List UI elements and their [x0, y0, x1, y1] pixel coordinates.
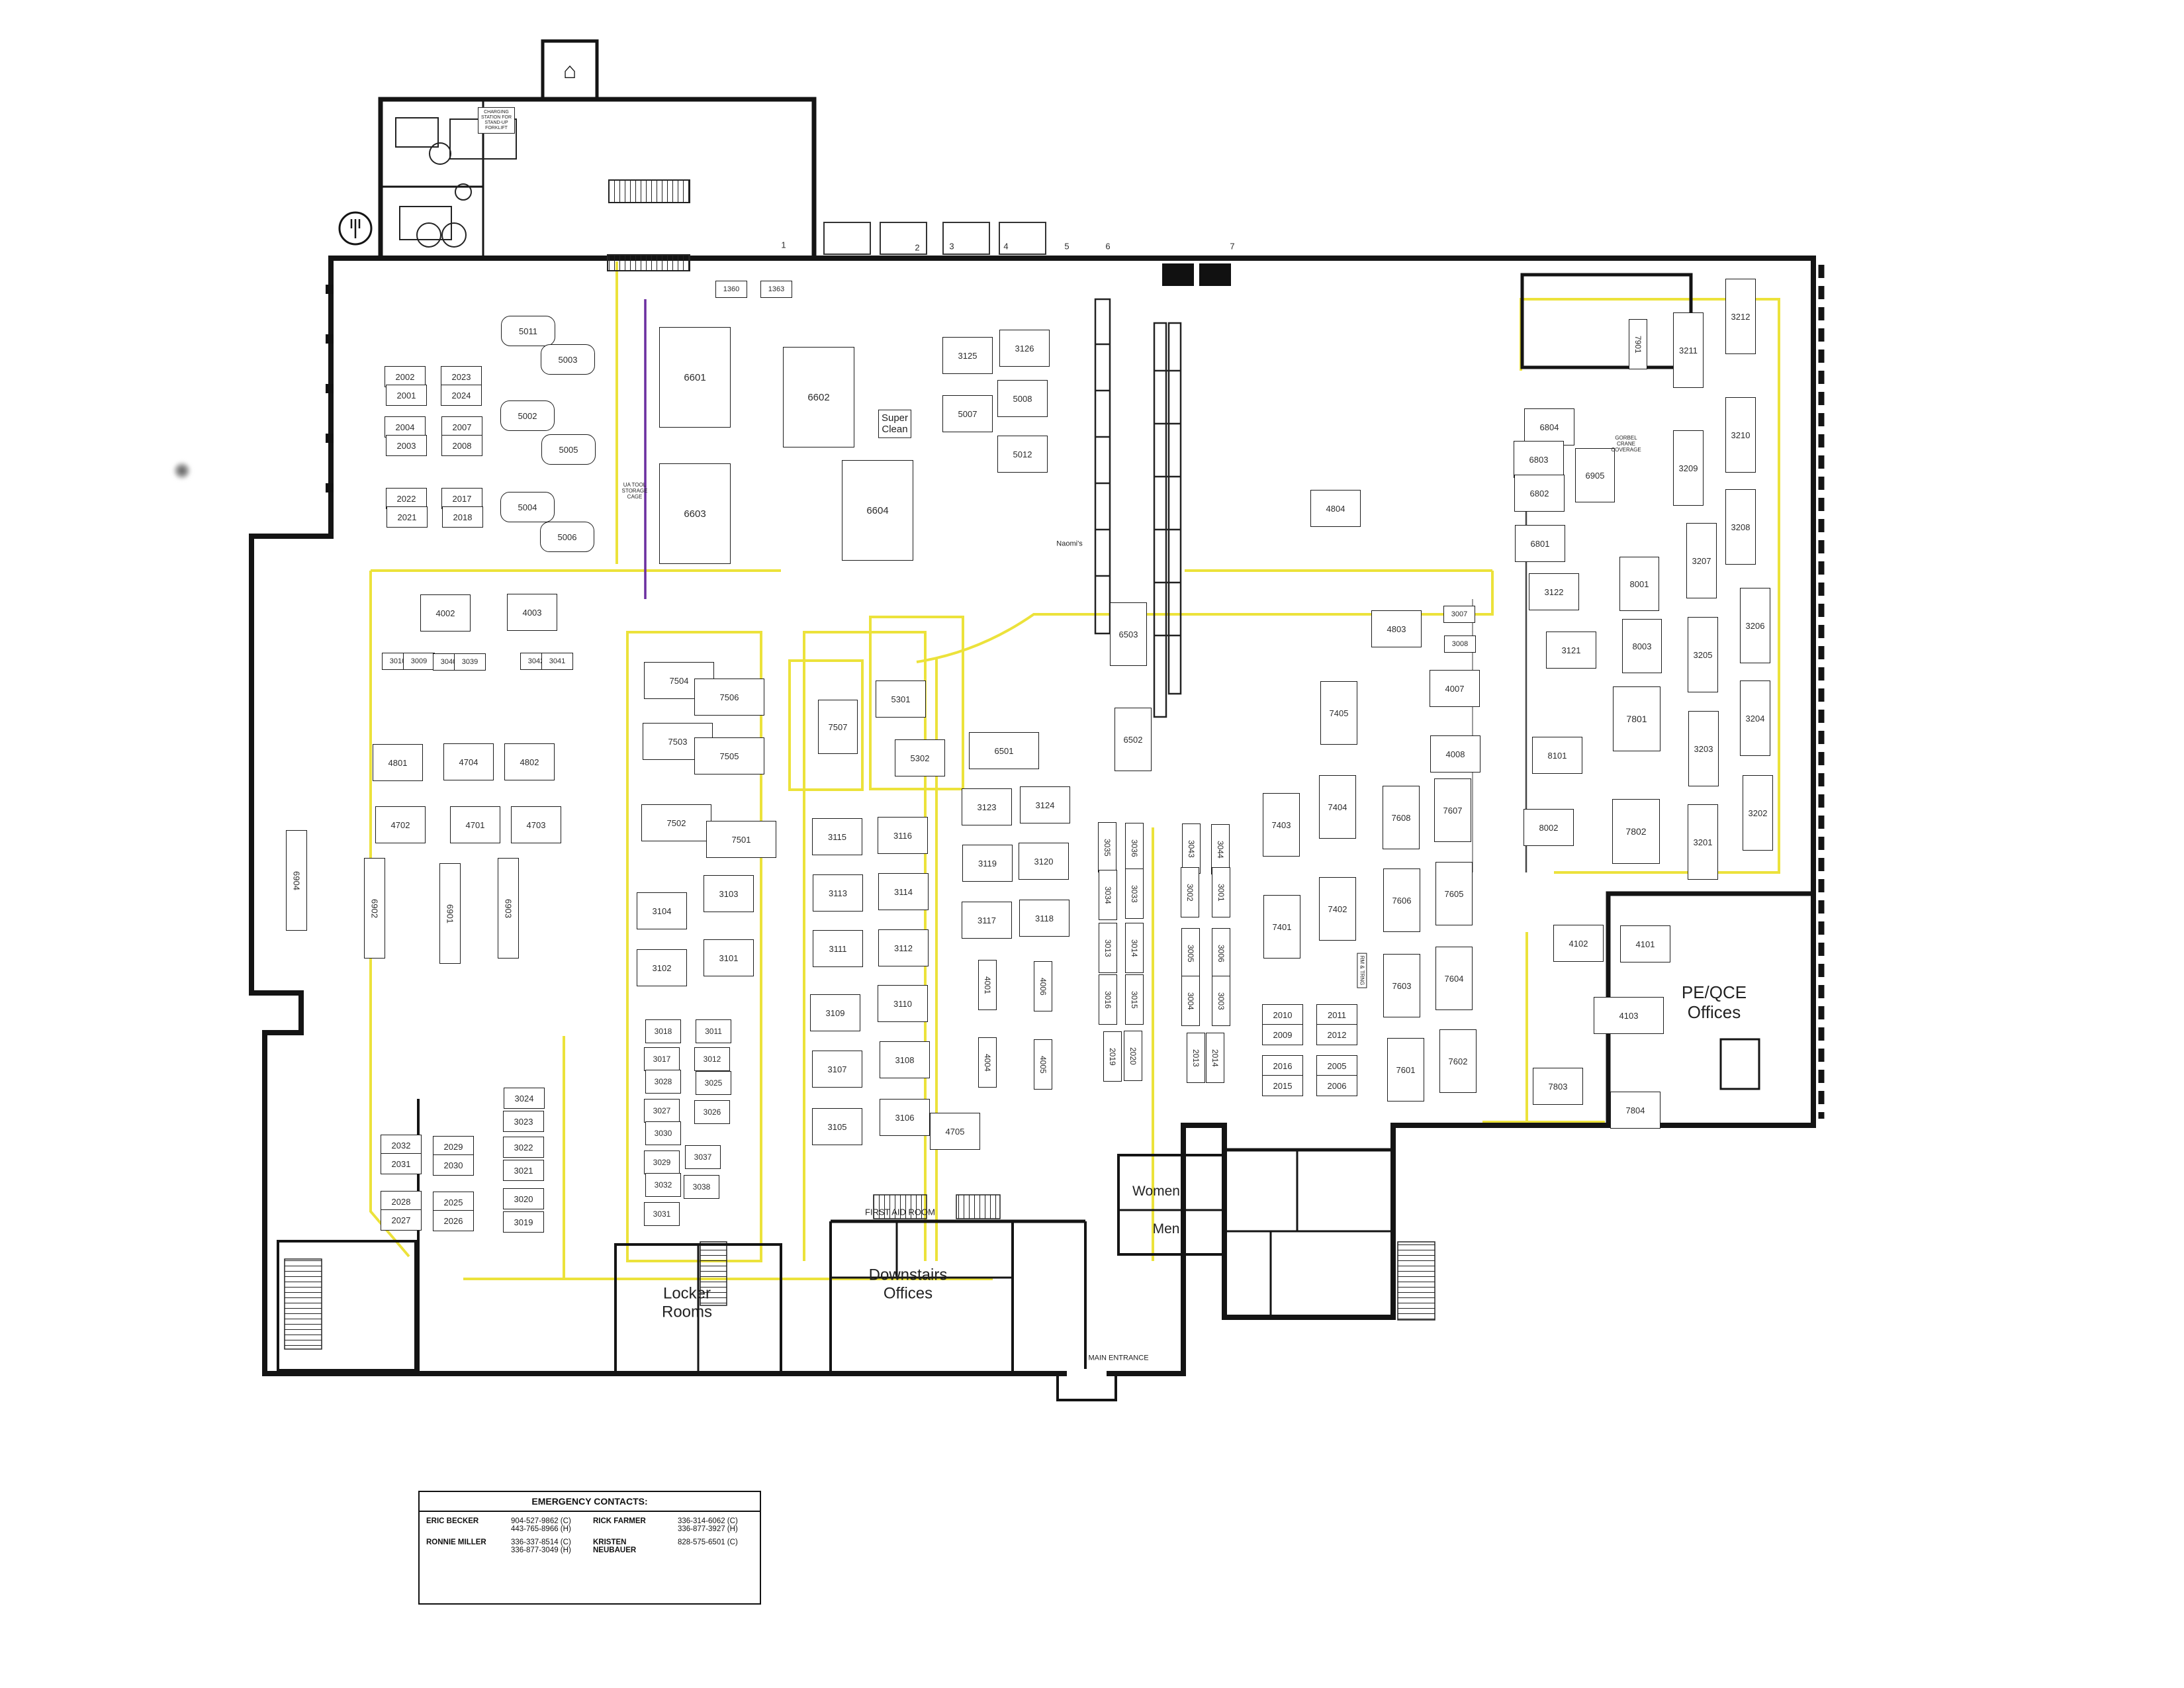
room-label-7602: 7602	[1439, 1029, 1477, 1093]
room-label-5302: 5302	[895, 739, 945, 776]
contact-entry: RONNIE MILLER 336-337-8514 (C) 336-877-3…	[426, 1538, 586, 1554]
room-label-3024: 3024	[504, 1088, 545, 1109]
room-label-3041: 3041	[541, 653, 573, 670]
room-label-4102: 4102	[1553, 925, 1604, 962]
room-label-2019: 2019	[1103, 1031, 1122, 1082]
room-label-7608: 7608	[1383, 786, 1420, 849]
room-label-4002: 4002	[420, 594, 471, 632]
room-label-1: 1	[780, 240, 786, 250]
room-label-2005: 2005	[1316, 1055, 1357, 1076]
room-label-3030: 3030	[645, 1121, 681, 1145]
emergency-contacts-body: ERIC BECKER 904-527-9862 (C) 443-765-896…	[420, 1512, 760, 1564]
room-label-6502: 6502	[1115, 708, 1152, 771]
room-label-3029: 3029	[644, 1150, 680, 1174]
room-label-3110: 3110	[878, 985, 928, 1022]
room-label-3202: 3202	[1743, 775, 1773, 851]
room-label-3126: 3126	[999, 330, 1050, 367]
restroom-block-wall	[1224, 1150, 1393, 1317]
contact-phones: 336-337-8514 (C) 336-877-3049 (H)	[511, 1538, 571, 1554]
contact-phones: 904-527-9862 (C) 443-765-8966 (H)	[511, 1517, 571, 1533]
camera-smudge	[173, 462, 191, 479]
emergency-contacts-title: EMERGENCY CONTACTS:	[420, 1492, 760, 1512]
contact-phone: 443-765-8966 (H)	[511, 1525, 571, 1533]
room-label-3116: 3116	[878, 817, 928, 854]
room-label-6803: 6803	[1514, 441, 1564, 478]
room-label-3003: 3003	[1212, 976, 1230, 1026]
room-label-6901: 6901	[439, 863, 461, 964]
room-label-7803: 7803	[1533, 1068, 1583, 1105]
contact-name: RONNIE MILLER	[426, 1538, 504, 1554]
room-label-8001: 8001	[1619, 557, 1659, 611]
room-label-3123: 3123	[962, 788, 1012, 825]
room-label-3019: 3019	[503, 1211, 544, 1233]
room-label-5008: 5008	[997, 380, 1048, 417]
room-label-3014: 3014	[1125, 923, 1144, 973]
room-label-3005: 3005	[1181, 928, 1200, 978]
room-label-5003: 5003	[541, 344, 595, 375]
room-label-2016: 2016	[1262, 1055, 1303, 1076]
room-label-7502: 7502	[641, 804, 711, 841]
room-label-2001: 2001	[386, 385, 427, 406]
contact-phone: 904-527-9862 (C)	[511, 1517, 571, 1525]
room-label-1360: 1360	[715, 281, 747, 298]
area-text: Super Clean	[878, 410, 911, 438]
room-label-6604: 6604	[842, 460, 913, 561]
walls-layer: ⌂	[0, 0, 2184, 1688]
area-text: FIRST AID ROOM	[865, 1208, 935, 1218]
room-label-3103: 3103	[704, 875, 754, 912]
room-label-3117: 3117	[962, 902, 1012, 939]
room-label-3020: 3020	[503, 1188, 544, 1209]
room-label-5004: 5004	[500, 492, 555, 522]
room-label-2014: 2014	[1206, 1033, 1224, 1083]
room-label-3105: 3105	[812, 1108, 862, 1145]
contact-phone: 336-877-3049 (H)	[511, 1546, 571, 1554]
room-label-2010: 2010	[1262, 1004, 1303, 1025]
room-label-3121: 3121	[1546, 632, 1596, 669]
area-text: PE/QCE Offices	[1682, 983, 1747, 1023]
room-label-3207: 3207	[1686, 523, 1717, 598]
room-label-3033: 3033	[1125, 868, 1144, 919]
room-label-6802: 6802	[1514, 475, 1565, 512]
room-label-3104: 3104	[637, 892, 687, 929]
room-label-3115: 3115	[812, 818, 862, 855]
room-label-3034: 3034	[1099, 870, 1117, 920]
room-label-7505: 7505	[694, 737, 764, 774]
area-text: RM & TRNG	[1357, 953, 1367, 988]
room-label-4702: 4702	[375, 806, 426, 843]
contact-entry: KRISTEN NEUBAUER 828-575-6501 (C)	[593, 1538, 753, 1554]
room-label-7605: 7605	[1435, 862, 1473, 925]
room-label-3017: 3017	[644, 1047, 680, 1071]
fork-icon	[340, 212, 371, 244]
room-label-3004: 3004	[1181, 976, 1200, 1026]
room-label-6902: 6902	[364, 858, 385, 959]
kitchen-equipment	[396, 118, 516, 247]
room-label-3006: 3006	[1212, 928, 1230, 978]
room-label-5006: 5006	[540, 522, 594, 552]
room-label-7401: 7401	[1263, 895, 1300, 959]
dock-ramp	[285, 1259, 322, 1349]
contact-phone: 336-337-8514 (C)	[511, 1538, 571, 1546]
room-label-6501: 6501	[969, 732, 1039, 769]
room-label-2012: 2012	[1316, 1024, 1357, 1045]
room-label-4001: 4001	[978, 960, 997, 1010]
room-label-4802: 4802	[504, 743, 555, 780]
room-label-3015: 3015	[1125, 974, 1144, 1025]
room-label-3125: 3125	[942, 337, 993, 374]
room-label-3037: 3037	[685, 1145, 721, 1169]
room-label-2020: 2020	[1124, 1031, 1142, 1081]
area-text: GORBEL CRANE COVERAGE	[1611, 435, 1641, 453]
room-label-3025: 3025	[696, 1071, 731, 1095]
room-label-7601: 7601	[1387, 1038, 1424, 1102]
room-label-3009: 3009	[403, 653, 435, 670]
area-text: Downstairs Offices	[869, 1266, 948, 1302]
room-label-7501: 7501	[706, 821, 776, 858]
contact-name: KRISTEN NEUBAUER	[593, 1538, 671, 1554]
restroom-inner-walls	[1224, 1150, 1393, 1317]
room-label-3113: 3113	[813, 874, 863, 912]
room-label-3012: 3012	[694, 1047, 730, 1071]
room-label-7804: 7804	[1610, 1092, 1661, 1129]
room-label-3035: 3035	[1098, 822, 1116, 872]
room-label-3013: 3013	[1099, 923, 1117, 973]
room-label-3038: 3038	[684, 1175, 719, 1199]
room-label-3001: 3001	[1212, 867, 1230, 917]
room-label-7606: 7606	[1383, 868, 1420, 932]
room-label-8002: 8002	[1524, 809, 1574, 846]
room-label-7506: 7506	[694, 679, 764, 716]
contact-name: ERIC BECKER	[426, 1517, 504, 1533]
equipment-block	[1199, 263, 1231, 286]
room-label-6: 6	[1105, 242, 1111, 252]
room-label-3206: 3206	[1740, 588, 1770, 663]
room-label-3120: 3120	[1019, 843, 1069, 880]
room-label-4003: 4003	[507, 594, 557, 631]
room-label-3032: 3032	[645, 1173, 681, 1197]
room-label-4704: 4704	[443, 743, 494, 780]
room-label-3027: 3027	[644, 1099, 680, 1123]
area-text: Naomi's	[1056, 540, 1082, 549]
contact-name: RICK FARMER	[593, 1517, 671, 1533]
room-label-7604: 7604	[1435, 947, 1473, 1010]
room-label-3018: 3018	[645, 1019, 681, 1043]
room-label-5007: 5007	[942, 395, 993, 432]
room-label-4008: 4008	[1430, 735, 1480, 773]
room-label-3211: 3211	[1673, 312, 1704, 388]
room-label-7403: 7403	[1263, 793, 1300, 857]
room-label-2030: 2030	[433, 1154, 474, 1176]
room-label-2006: 2006	[1316, 1075, 1357, 1096]
room-label-3205: 3205	[1688, 617, 1718, 692]
room-label-3022: 3022	[503, 1137, 544, 1158]
room-label-5011: 5011	[501, 316, 555, 346]
top-annex-wall	[381, 99, 814, 258]
room-label-5: 5	[1064, 242, 1069, 252]
room-label-3031: 3031	[644, 1202, 680, 1226]
room-label-4803: 4803	[1371, 610, 1422, 647]
floor-plan: ⌂ 20022001202320242004200320072008202220…	[0, 0, 2184, 1688]
room-label-3212: 3212	[1725, 279, 1756, 354]
room-label-2021: 2021	[387, 506, 428, 528]
room-label-7801: 7801	[1613, 686, 1661, 751]
room-label-3124: 3124	[1020, 786, 1070, 823]
room-label-7: 7	[1229, 242, 1235, 252]
room-label-2031: 2031	[381, 1153, 422, 1174]
contact-entry: ERIC BECKER 904-527-9862 (C) 443-765-896…	[426, 1517, 586, 1533]
room-label-2003: 2003	[386, 435, 427, 456]
room-label-6905: 6905	[1575, 448, 1615, 502]
room-label-3203: 3203	[1688, 711, 1719, 786]
conveyor-row	[824, 222, 1046, 254]
room-label-4007: 4007	[1430, 670, 1480, 707]
room-label-3028: 3028	[645, 1070, 681, 1094]
dock-plates-lower	[608, 255, 690, 271]
room-label-3108: 3108	[880, 1041, 930, 1078]
room-label-5012: 5012	[997, 436, 1048, 473]
room-label-3021: 3021	[503, 1160, 544, 1181]
home-icon: ⌂	[563, 58, 577, 83]
room-label-4005: 4005	[1034, 1039, 1052, 1090]
room-label-7404: 7404	[1319, 775, 1356, 839]
room-label-2013: 2013	[1187, 1033, 1205, 1083]
room-label-3036: 3036	[1125, 823, 1144, 873]
equipment-block	[1162, 263, 1194, 286]
room-label-6602: 6602	[783, 347, 854, 447]
room-label-3011: 3011	[696, 1019, 731, 1043]
stairs	[956, 1195, 1000, 1219]
room-label-4705: 4705	[930, 1113, 980, 1150]
dock-plates-top	[609, 180, 690, 203]
room-label-3023: 3023	[503, 1111, 544, 1132]
area-text: CHARGING STATION FOR STAND-UP FORKLIFT	[478, 107, 515, 134]
room-label-3043: 3043	[1182, 823, 1201, 874]
room-label-3016: 3016	[1099, 974, 1117, 1025]
room-label-3114: 3114	[878, 873, 929, 910]
area-text: UA TOOL STORAGE CAGE	[622, 482, 648, 500]
room-label-6801: 6801	[1515, 525, 1565, 562]
room-label-6503: 6503	[1110, 602, 1147, 666]
room-label-6804: 6804	[1524, 408, 1574, 445]
room-label-3112: 3112	[878, 929, 929, 966]
room-label-2015: 2015	[1262, 1075, 1303, 1096]
room-label-3: 3	[948, 242, 954, 252]
shipping-room-wall	[1522, 275, 1691, 367]
room-label-3204: 3204	[1740, 680, 1770, 756]
room-label-6904: 6904	[286, 830, 307, 931]
room-label-6603: 6603	[659, 463, 731, 564]
room-label-4703: 4703	[511, 806, 561, 843]
room-label-3109: 3109	[810, 994, 860, 1031]
room-label-3122: 3122	[1529, 573, 1579, 610]
area-text: MAIN ENTRANCE	[1088, 1354, 1148, 1363]
room-label-4701: 4701	[450, 806, 500, 843]
room-label-3107: 3107	[812, 1051, 862, 1088]
room-label-3111: 3111	[813, 930, 863, 967]
area-text: Locker Rooms	[662, 1284, 712, 1321]
room-label-2: 2	[914, 243, 920, 253]
room-label-2011: 2011	[1316, 1004, 1357, 1025]
room-label-3118: 3118	[1019, 900, 1069, 937]
women-men-room-wall	[1118, 1155, 1224, 1254]
room-label-7603: 7603	[1383, 954, 1420, 1017]
room-label-4101: 4101	[1620, 925, 1670, 962]
contact-phones: 336-314-6062 (C) 336-877-3927 (H)	[678, 1517, 738, 1533]
room-label-2027: 2027	[381, 1209, 422, 1231]
main-entrance-opening	[1067, 1369, 1107, 1378]
room-label-6903: 6903	[498, 858, 519, 959]
contact-phone: 336-314-6062 (C)	[678, 1517, 738, 1525]
room-label-2026: 2026	[433, 1210, 474, 1231]
contact-entry: RICK FARMER 336-314-6062 (C) 336-877-392…	[593, 1517, 753, 1533]
room-label-7802: 7802	[1612, 799, 1660, 864]
room-label-3106: 3106	[880, 1099, 930, 1136]
room-label-3209: 3209	[1673, 430, 1704, 506]
room-label-3201: 3201	[1688, 804, 1718, 880]
room-label-5002: 5002	[500, 400, 555, 431]
room-label-3208: 3208	[1725, 489, 1756, 565]
room-label-4: 4	[1003, 242, 1009, 252]
room-label-3102: 3102	[637, 949, 687, 986]
room-label-8101: 8101	[1532, 737, 1582, 774]
stairs	[1398, 1242, 1435, 1320]
room-label-3002: 3002	[1181, 867, 1199, 917]
emergency-contacts-table: EMERGENCY CONTACTS: ERIC BECKER 904-527-…	[418, 1491, 761, 1605]
room-label-2008: 2008	[441, 435, 482, 456]
room-label-7901: 7901	[1629, 319, 1647, 369]
room-label-2024: 2024	[441, 385, 482, 406]
room-label-2009: 2009	[1262, 1024, 1303, 1045]
room-label-7507: 7507	[818, 700, 858, 754]
room-label-1363: 1363	[760, 281, 792, 298]
room-label-3101: 3101	[704, 939, 754, 976]
room-label-4006: 4006	[1034, 961, 1052, 1011]
room-label-5005: 5005	[541, 434, 596, 465]
room-label-3210: 3210	[1725, 397, 1756, 473]
peqce-inner-room	[1721, 1039, 1759, 1089]
room-label-3007: 3007	[1443, 606, 1475, 623]
room-label-4801: 4801	[373, 744, 423, 781]
room-label-3119: 3119	[962, 845, 1013, 882]
room-label-3039: 3039	[454, 653, 486, 671]
room-label-4804: 4804	[1310, 490, 1361, 527]
room-label-2018: 2018	[442, 506, 483, 528]
room-label-3026: 3026	[694, 1100, 730, 1124]
contact-phones: 828-575-6501 (C)	[678, 1538, 738, 1554]
contact-phone: 828-575-6501 (C)	[678, 1538, 738, 1546]
area-text: Women	[1132, 1184, 1180, 1199]
room-label-4103: 4103	[1594, 997, 1664, 1034]
contact-phone: 336-877-3927 (H)	[678, 1525, 738, 1533]
room-label-3008: 3008	[1444, 635, 1476, 653]
room-label-7405: 7405	[1320, 681, 1357, 745]
area-text: Men	[1153, 1221, 1180, 1237]
room-label-6601: 6601	[659, 327, 731, 428]
room-label-4004: 4004	[978, 1037, 997, 1088]
room-label-7607: 7607	[1434, 778, 1471, 842]
room-label-7402: 7402	[1319, 877, 1356, 941]
room-label-5301: 5301	[876, 680, 926, 718]
room-label-8003: 8003	[1622, 619, 1662, 673]
